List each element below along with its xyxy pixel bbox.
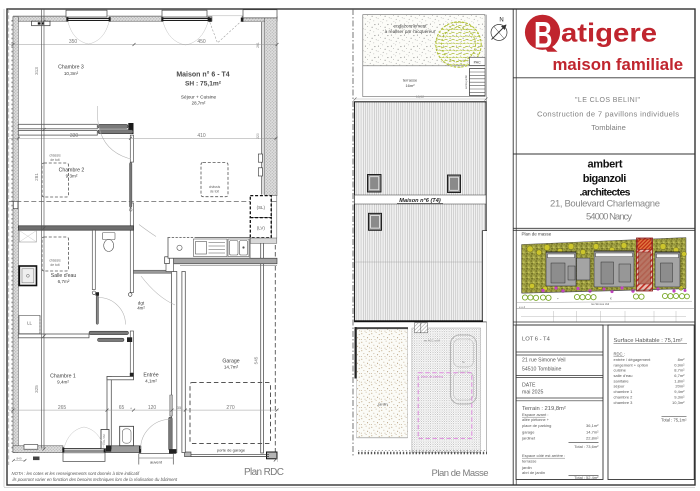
svg-text:545: 545 xyxy=(254,356,259,364)
svg-text:8,7m²: 8,7m² xyxy=(674,368,685,373)
svg-text:Plan RDC: Plan RDC xyxy=(244,467,284,478)
svg-text:10,3m²: 10,3m² xyxy=(672,400,685,405)
svg-text:8m²: 8m² xyxy=(678,357,686,362)
svg-text:330: 330 xyxy=(70,133,79,139)
svg-text:20m²: 20m² xyxy=(675,384,685,389)
svg-text:14,7m²: 14,7m² xyxy=(224,365,239,370)
svg-text:séjour: séjour xyxy=(614,384,626,389)
svg-text:Tomblaine: Tomblaine xyxy=(591,123,626,132)
svg-text:Total : 75,1m²: Total : 75,1m² xyxy=(661,418,687,423)
svg-text:à réaliser par l'acquéreur: à réaliser par l'acquéreur xyxy=(385,29,436,34)
svg-text:(SL): (SL) xyxy=(257,205,266,210)
svg-text:rue Simone Veil: rue Simone Veil xyxy=(591,302,610,306)
svg-text:54510 Tomblaine: 54510 Tomblaine xyxy=(522,366,562,372)
svg-text:6,7m²: 6,7m² xyxy=(58,279,70,284)
svg-text:410: 410 xyxy=(197,133,206,139)
svg-text:en ACC ut M: en ACC ut M xyxy=(424,339,441,343)
svg-text:Total : 73,6m²: Total : 73,6m² xyxy=(574,444,599,449)
svg-text:54000 Nancy: 54000 Nancy xyxy=(586,212,632,223)
svg-text:sanitaire: sanitaire xyxy=(614,378,630,383)
svg-text:COL.TAC: COL.TAC xyxy=(102,434,106,445)
svg-text:chambre 3: chambre 3 xyxy=(614,400,634,405)
svg-text:chambre 2: chambre 2 xyxy=(614,394,634,399)
svg-text:1,8m²: 1,8m² xyxy=(674,378,685,383)
svg-text:4,1m²: 4,1m² xyxy=(145,379,157,384)
svg-text:14,7m²: 14,7m² xyxy=(586,429,599,434)
svg-text:36,1m²: 36,1m² xyxy=(586,423,599,428)
svg-text:e e d: e e d xyxy=(519,305,526,309)
svg-text:265: 265 xyxy=(58,405,67,411)
svg-text:entrée / dégagement: entrée / dégagement xyxy=(614,357,652,362)
svg-text:mai 2025: mai 2025 xyxy=(522,390,543,396)
svg-text:"LE CLOS BELINI": "LE CLOS BELINI" xyxy=(575,97,641,104)
svg-text:Espace côté est arrière :: Espace côté est arrière : xyxy=(522,453,565,458)
svg-text:cuisine: cuisine xyxy=(614,368,627,373)
svg-text:Chambre 3: Chambre 3 xyxy=(58,65,84,71)
svg-text:LOT 6 - T4: LOT 6 - T4 xyxy=(522,337,551,343)
svg-text:LL: LL xyxy=(27,321,32,326)
svg-text:Construction de 7 pavillons in: Construction de 7 pavillons individuels xyxy=(537,110,679,119)
svg-text:13,92: 13,92 xyxy=(416,95,424,99)
svg-text:biganzoli: biganzoli xyxy=(583,173,627,185)
svg-text:PAC: PAC xyxy=(474,60,482,64)
svg-text:rangement + option: rangement + option xyxy=(614,362,649,367)
svg-text:Surface Habitable : 75,1m²: Surface Habitable : 75,1m² xyxy=(614,338,683,344)
svg-text:jardin: jardin xyxy=(377,403,387,407)
svg-text:place de parking: place de parking xyxy=(522,423,551,428)
svg-text:⌐: ⌐ xyxy=(557,297,559,301)
svg-text:salle d'eau: salle d'eau xyxy=(614,373,633,378)
svg-text:jardin: jardin xyxy=(521,465,532,470)
svg-text:220: 220 xyxy=(256,133,260,139)
svg-text:terrasse: terrasse xyxy=(522,459,537,464)
svg-text:Plan de Masse: Plan de Masse xyxy=(432,468,489,479)
svg-text:SH : 75,1m²: SH : 75,1m² xyxy=(185,81,222,88)
svg-text:270: 270 xyxy=(226,405,235,411)
svg-text:5u: 5u xyxy=(462,360,466,364)
svg-text:Plan de masse: Plan de masse xyxy=(522,231,552,236)
svg-text:9,4m²: 9,4m² xyxy=(674,389,685,394)
svg-text:garage: garage xyxy=(522,429,535,434)
svg-text:porte de garage: porte de garage xyxy=(217,447,246,452)
svg-text:450: 450 xyxy=(197,39,206,45)
svg-text:Maison n° 6 - T4: Maison n° 6 - T4 xyxy=(176,71,229,79)
svg-text:terrasse: terrasse xyxy=(403,78,418,83)
svg-text:engazonnement: engazonnement xyxy=(394,24,428,29)
svg-text:ambert: ambert xyxy=(588,159,623,171)
svg-text:allée piétonne +: allée piétonne + xyxy=(522,418,550,422)
svg-text:120: 120 xyxy=(148,405,157,411)
svg-text:313: 313 xyxy=(34,67,39,75)
svg-text:22,8m²: 22,8m² xyxy=(586,436,599,441)
svg-text:DATE: DATE xyxy=(522,382,536,388)
svg-text:35: 35 xyxy=(177,405,182,410)
svg-text:place de parking: place de parking xyxy=(421,375,443,379)
svg-text:abri de jardin: abri de jardin xyxy=(522,470,545,475)
svg-text:4m²: 4m² xyxy=(137,306,145,311)
svg-text:9,4m²: 9,4m² xyxy=(57,380,69,385)
svg-text:9,3m²: 9,3m² xyxy=(66,174,78,179)
svg-text:accès jardin: accès jardin xyxy=(464,74,468,89)
svg-text:350: 350 xyxy=(69,39,78,45)
svg-text:RDC :: RDC : xyxy=(614,351,625,356)
svg-text:325: 325 xyxy=(34,385,39,393)
svg-text:NOTA : les cotes et les rensei: NOTA : les cotes et les renseignements s… xyxy=(12,471,140,476)
svg-text:10,3m²: 10,3m² xyxy=(64,71,79,76)
svg-text:21 rue Simone Veil: 21 rue Simone Veil xyxy=(522,358,566,364)
svg-text:261: 261 xyxy=(256,42,260,48)
svg-text:6,7m²: 6,7m² xyxy=(674,373,685,378)
svg-text:.architectes: .architectes xyxy=(580,186,631,198)
svg-text:chambre 1: chambre 1 xyxy=(614,389,634,394)
svg-text:ils pourront varier en fonctio: ils pourront varier en fonction des beso… xyxy=(13,477,178,482)
svg-text:21, Boulevard Charlemagne: 21, Boulevard Charlemagne xyxy=(550,199,660,210)
svg-text:maison familiale: maison familiale xyxy=(553,55,684,74)
svg-text:9,3m²: 9,3m² xyxy=(674,394,685,399)
svg-text:auvent: auvent xyxy=(150,460,163,465)
svg-text:28,7m²: 28,7m² xyxy=(192,101,206,106)
svg-text:N: N xyxy=(499,18,503,24)
svg-text:281: 281 xyxy=(34,173,39,181)
svg-text:65: 65 xyxy=(119,405,125,411)
svg-text:de toit: de toit xyxy=(210,189,219,193)
svg-text:B: B xyxy=(534,15,553,56)
svg-text:(LV): (LV) xyxy=(257,225,266,230)
svg-text:jardinet: jardinet xyxy=(521,436,536,441)
svg-text:0,9m²: 0,9m² xyxy=(674,362,685,367)
svg-text:849: 849 xyxy=(16,456,21,460)
svg-text:Espace avant :: Espace avant : xyxy=(522,412,548,417)
svg-text:de toit: de toit xyxy=(50,263,59,267)
svg-text:atigere: atigere xyxy=(561,18,657,48)
svg-text:de toit: de toit xyxy=(50,158,59,162)
svg-text:16m²: 16m² xyxy=(405,83,415,88)
